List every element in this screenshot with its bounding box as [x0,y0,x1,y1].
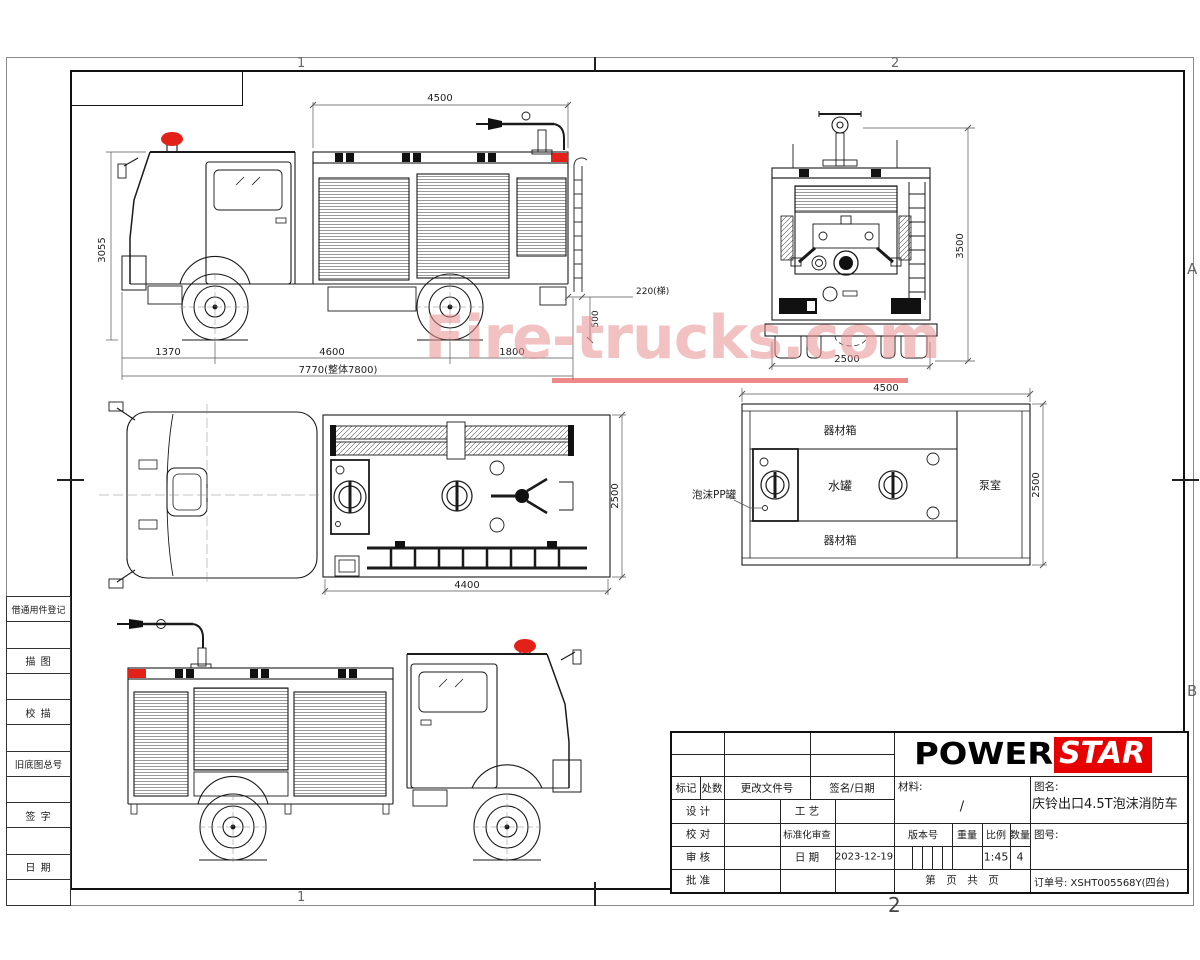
order-no: 订单号: XSHT005568Y(四台) [1034,874,1169,889]
front-wheel-2 [472,765,542,862]
front-marker-red [128,669,146,678]
monitor-plan [491,479,573,513]
pages-info: 第 页 共 页 [925,873,999,888]
spec-qty-value: 4 [1017,851,1024,864]
dim-2500-plan: 2500 [610,483,621,508]
rear-access-ladder [909,182,925,300]
rear-roller-shutter [795,186,897,212]
spec-qty-label: 数量 [1010,827,1030,842]
field-date: 日 期 [7,855,70,880]
label-foam-tank: 泡沫PP罐 [692,488,737,501]
rear-wheel-2 [198,776,268,862]
material-value: / [960,800,964,815]
right-side-view-drawing [95,612,670,887]
zone-tick-right [1172,479,1199,481]
label-equipment-box-top: 器材箱 [824,423,857,437]
rear-body [772,168,930,320]
roller-shutter [134,692,188,796]
logo-power-text: POWER [914,737,1053,772]
field-trace-drawing: 描 图 [7,649,70,674]
field-blank [7,828,70,855]
field-check-trace: 校 描 [7,700,70,725]
watermark-text: Fire-trucks.com [424,303,940,373]
label-water-tank: 水罐 [828,479,852,493]
field-blank [7,622,70,649]
zone-label-bottom-1: 1 [297,890,305,905]
col-mark: 标记 [676,781,697,796]
field-signature: 签 字 [7,803,70,828]
ladder-plan [367,541,587,568]
foam-tank-plan [331,460,369,534]
field-blank [7,725,70,752]
row-audit: 审 核 [686,850,710,865]
body-side-2 [128,668,393,814]
dim-4400: 4400 [454,580,479,591]
body-plan [323,415,610,577]
water-tank-manhole [879,471,907,499]
row-craft: 工 艺 [795,804,819,819]
zone-label-top-2: 2 [891,56,899,71]
roller-shutter [517,178,566,256]
water-monitor [476,112,564,154]
dim-total: 7770(整体7800) [299,363,378,376]
roller-shutter [319,178,409,280]
foam-pp-tank [753,449,798,521]
spec-version: 版本号 [908,827,938,842]
logo-star-text: STAR [1054,737,1152,773]
roller-shutter [294,692,386,796]
rear-marker-red [551,153,568,162]
spec-weight: 重量 [957,827,977,842]
rear-ladder [574,158,587,292]
dim-2500-tank: 2500 [1031,472,1042,497]
field-old-drawing-no: 旧底图总号 [7,752,70,777]
cab-side [118,132,313,304]
roof-monitor-rear [819,111,861,166]
dim-220: 220(梯) [636,285,669,297]
field-blank [7,777,70,804]
drawing-name-label: 图名: [1034,779,1059,794]
pump-assembly [791,216,901,275]
material-label: 材料: [898,779,923,794]
dim-3500: 3500 [955,233,966,258]
plan-view-drawing: 4400 2500 [95,398,660,608]
roller-shutter [194,688,288,770]
col-change-doc: 更改文件号 [741,781,794,796]
water-manhole-plan [442,481,472,511]
zone-tick-top [594,57,596,71]
dim-1370: 1370 [155,347,180,358]
cab-side-2 [407,639,581,806]
drawing-no-label: 图号: [1034,827,1059,842]
row-approve: 批 准 [686,873,710,888]
left-attribute-column: 借通用件登记 描 图 校 描 旧底图总号 签 字 日 期 [6,596,71,906]
label-pump-room: 泵室 [979,478,1001,492]
col-count: 处数 [702,781,723,796]
hatch-strip [781,216,793,260]
zone-label-right-b: B [1187,682,1197,700]
front-wheel [180,256,250,342]
beacon-icon [514,639,536,653]
roller-shutter [417,174,509,278]
row-check: 校 对 [686,827,710,842]
body-side [313,152,568,311]
spec-scale-value: 1:45 [984,851,1009,864]
tank-layout-drawing: 4500 2500 器材箱 器材箱 水罐 泵室 泡沫PP罐 [690,383,1065,598]
field-blank [7,674,70,701]
spec-scale-label: 比例 [986,827,1006,842]
row-date-label: 日 期 [795,850,819,865]
dim-4500: 4500 [427,93,452,104]
field-borrow-record: 借通用件登记 [7,597,70,622]
date-value: 2023-12-19 [835,852,893,863]
zone-label-top-1: 1 [297,56,305,71]
zone-tick-left [57,479,84,481]
col-sign-date: 签名/日期 [829,781,875,796]
watermark-underline [552,378,908,383]
label-equipment-box-bottom: 器材箱 [824,533,857,547]
title-block: POWERSTAR 标记 处数 更改文件号 签名/日期 设 计 工 艺 校 对 … [670,731,1189,894]
dim-4600: 4600 [319,347,344,358]
dim-3055: 3055 [97,237,108,262]
powerstar-logo: POWERSTAR [894,733,1187,776]
drawing-name-value: 庆铃出口4.5T泡沫消防车 [1032,793,1178,812]
beacon-icon [161,132,183,146]
cab-plan [99,402,323,588]
drawing-sheet: 1 2 1 2 A B 借通用件登记 描 图 校 描 旧底图总号 签 字 日 期 [0,0,1200,960]
zone-label-right-a: A [1187,260,1197,278]
dim-4500-tank: 4500 [873,383,898,394]
field-blank [7,880,70,906]
row-std-review: 标准化审查 [783,827,831,841]
zone-label-bottom-2: 2 [888,893,901,917]
row-design: 设 计 [686,804,710,819]
roof-clamps [335,153,496,162]
water-monitor-2 [117,619,211,668]
